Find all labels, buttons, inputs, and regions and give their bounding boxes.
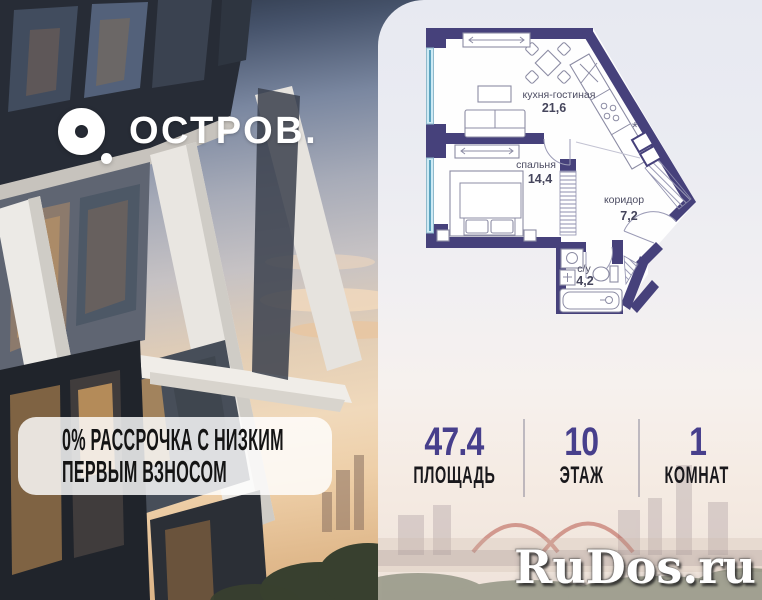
room-name-corridor: коридор (604, 194, 644, 206)
brand-name: ОСТРОВ. (129, 110, 318, 153)
rudos-watermark: RuDos.ru (514, 540, 756, 594)
building-illustration (0, 0, 378, 600)
stat-floor: 10 ЭТАЖ (523, 419, 639, 497)
bed-symbol (437, 171, 536, 241)
apartment-stats: 47.4 ПЛОЩАДЬ 10 ЭТАЖ 1 КОМНАТ (386, 419, 754, 497)
promo-line-1: 0% РАССРОЧКА С НИЗКИМ (62, 424, 202, 456)
apartment-info-panel: * (378, 0, 762, 600)
room-name-kitchen-living: кухня-гостиная (523, 89, 596, 101)
window-left-living (427, 48, 434, 124)
floor-plan: * (408, 6, 708, 331)
stat-floor-label: ЭТАЖ (560, 463, 604, 489)
stat-rooms-value: 1 (689, 421, 706, 463)
window-left-bedroom (427, 158, 434, 233)
nightstand-symbol (524, 230, 536, 241)
ring-and-dot-icon (58, 108, 105, 155)
tv-stand-symbol (463, 33, 530, 47)
nightstand-symbol (437, 230, 449, 241)
stat-floor-value: 10 (565, 421, 599, 463)
washer-symbol (560, 270, 575, 285)
stat-rooms-label: КОМНАТ (665, 463, 729, 489)
dresser-symbol (455, 145, 519, 158)
room-area-kitchen-living: 21,6 (542, 101, 566, 115)
sofa-symbol (465, 110, 525, 137)
promo-banner: 0% РАССРОЧКА С НИЗКИМ ПЕРВЫМ ВЗНОСОМ (18, 417, 332, 495)
vent-symbol: * (632, 119, 638, 136)
ostrov-logo: ОСТРОВ. (58, 108, 318, 155)
wardrobe-symbol (560, 171, 576, 235)
real-estate-ad: * (0, 0, 762, 600)
stat-area-value: 47.4 (425, 421, 484, 463)
room-area-bathroom: 4,2 (576, 274, 593, 288)
stat-rooms: 1 КОМНАТ (638, 419, 754, 497)
room-area-corridor: 7,2 (620, 209, 637, 223)
coffee-table-symbol (478, 86, 511, 102)
room-area-bedroom: 14,4 (528, 172, 552, 186)
promo-line-2: ПЕРВЫМ ВЗНОСОМ (62, 456, 202, 488)
stat-area: 47.4 ПЛОЩАДЬ (386, 419, 523, 497)
stat-area-label: ПЛОЩАДЬ (413, 463, 495, 489)
bathtub-symbol (560, 289, 622, 312)
toilet-symbol (593, 266, 618, 282)
floor-plan-svg: * (408, 6, 708, 326)
room-name-bedroom: спальня (516, 159, 556, 171)
